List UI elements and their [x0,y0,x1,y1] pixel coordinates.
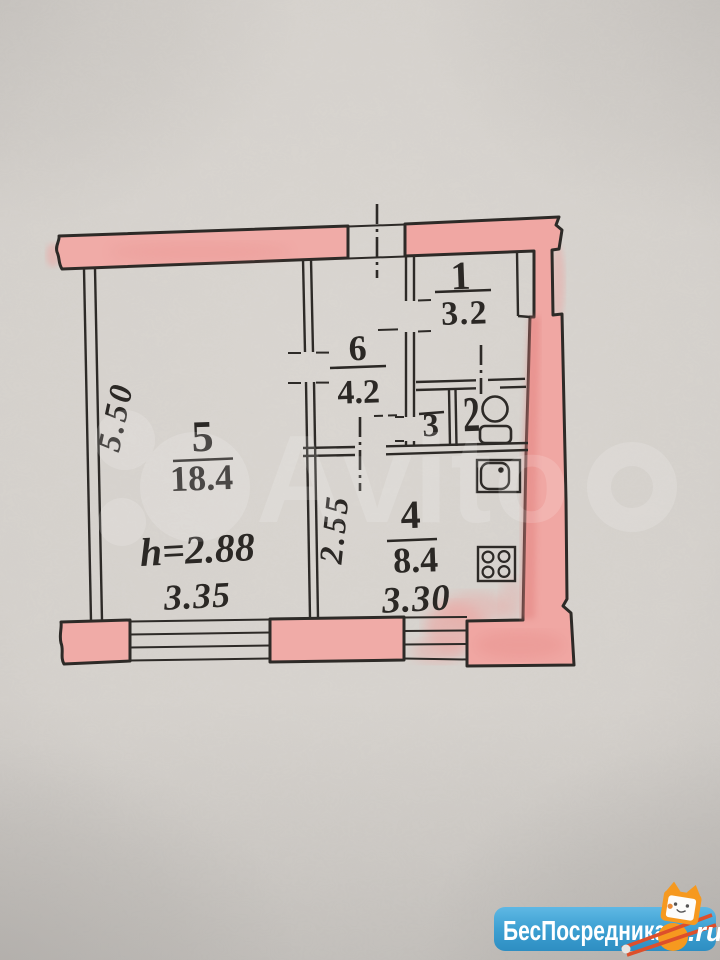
svg-text:1: 1 [450,253,472,299]
svg-text:6: 6 [348,328,367,369]
svg-text:3.30: 3.30 [380,577,452,622]
svg-text:3.35: 3.35 [162,574,232,618]
svg-text:3.2: 3.2 [441,294,489,333]
svg-text:4.2: 4.2 [337,373,381,411]
svg-text:Avito: Avito [256,411,571,549]
